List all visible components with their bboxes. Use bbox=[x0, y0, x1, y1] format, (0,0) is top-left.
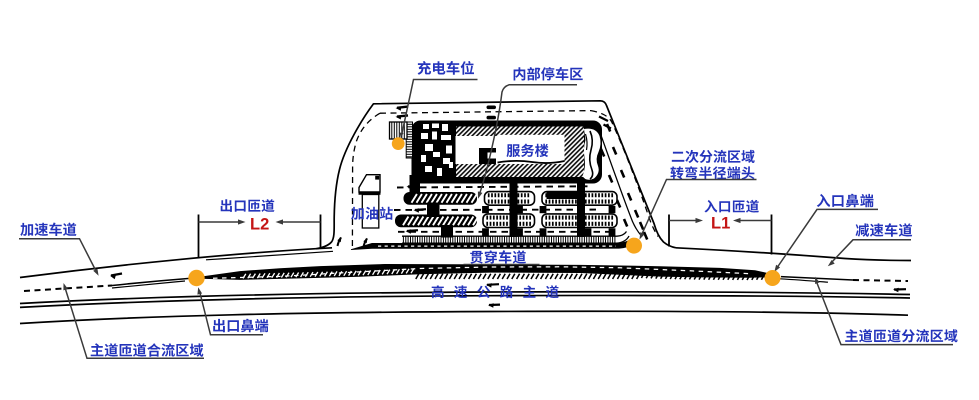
svg-text:L1: L1 bbox=[711, 215, 730, 233]
svg-text:L2: L2 bbox=[250, 216, 269, 234]
